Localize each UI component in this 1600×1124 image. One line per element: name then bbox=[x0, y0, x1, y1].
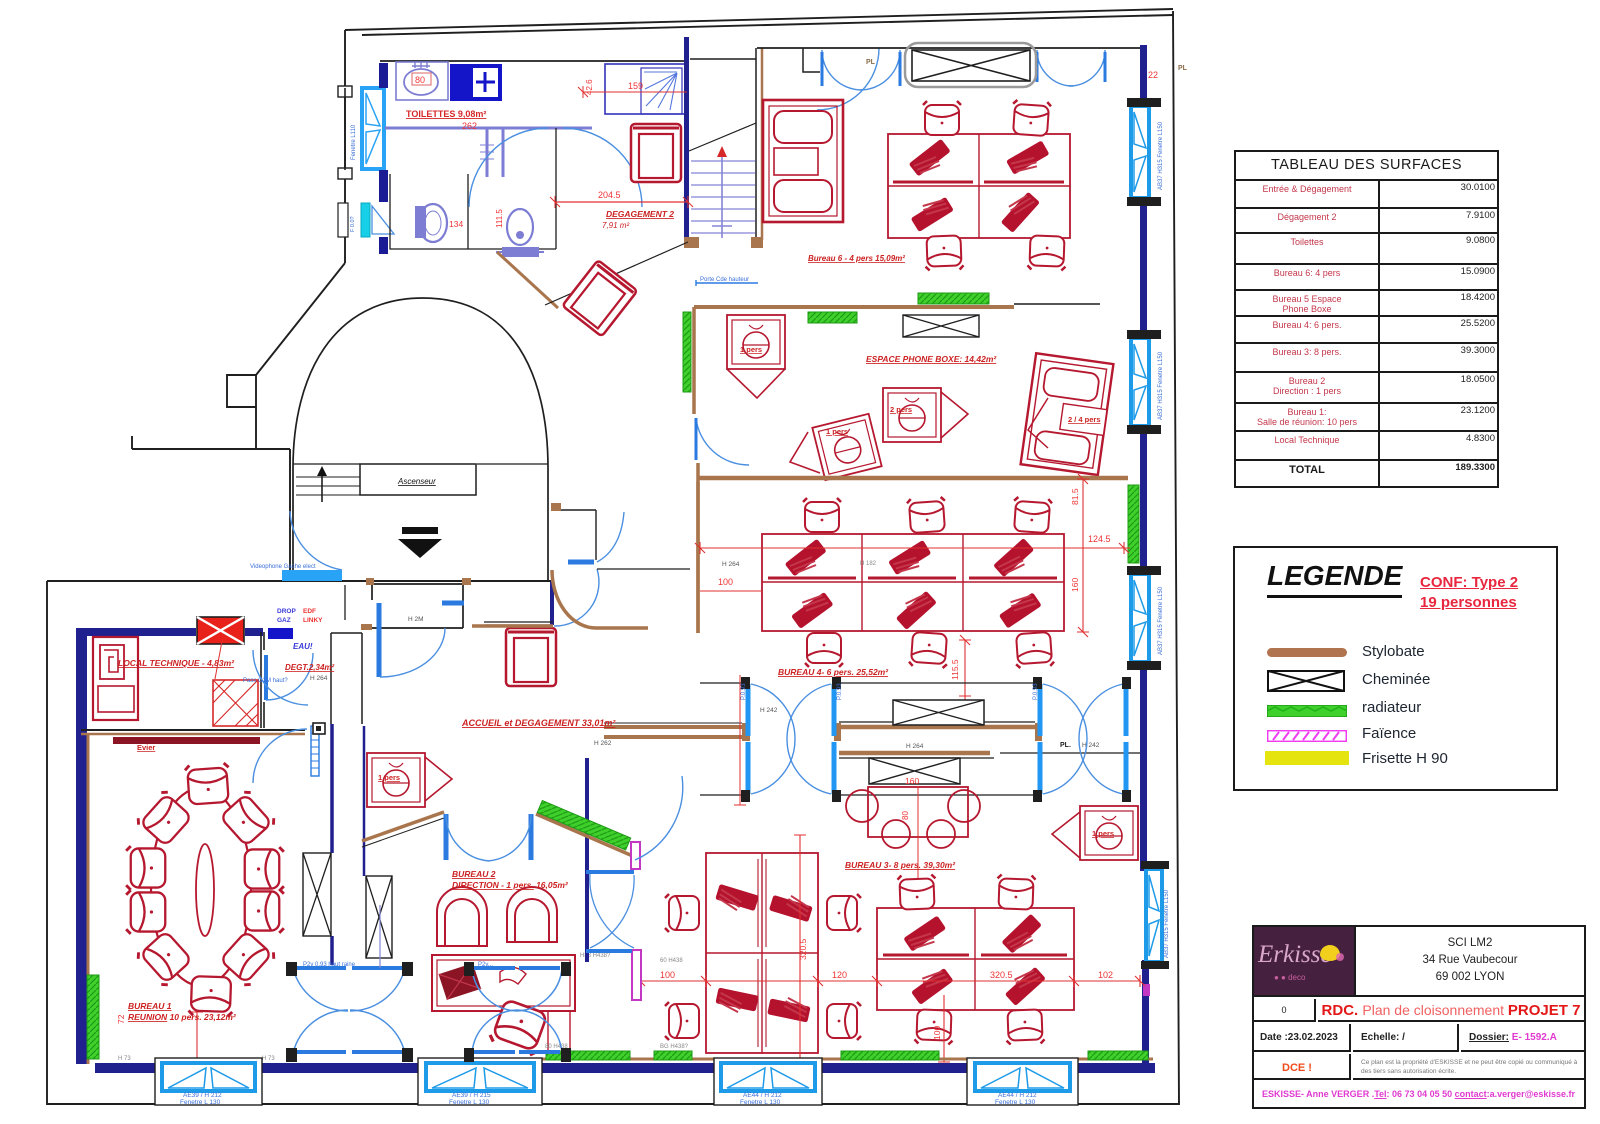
svg-text:Porte Cde hauteur: Porte Cde hauteur bbox=[700, 277, 749, 283]
svg-text:H 2M: H 2M bbox=[408, 616, 424, 623]
svg-text:AB37 H315 Fenetre L150: AB37 H315 Fenetre L150 bbox=[1164, 889, 1170, 958]
svg-text:ACCUEIL et DEGAGEMENT 33,01m²: ACCUEIL et DEGAGEMENT 33,01m² bbox=[461, 718, 616, 728]
svg-text:AB37 H315 Fenetre L150: AB37 H315 Fenetre L150 bbox=[1158, 121, 1164, 190]
svg-text:Bureau 6 - 4 pers 15,09m²: Bureau 6 - 4 pers 15,09m² bbox=[808, 254, 905, 263]
svg-text:F 0.0?: F 0.0? bbox=[350, 216, 356, 232]
svg-text:DEGT.2,34m²: DEGT.2,34m² bbox=[285, 663, 335, 672]
svg-text:H 73: H 73 bbox=[118, 1056, 131, 1062]
svg-text:AE44 / H 212: AE44 / H 212 bbox=[998, 1092, 1037, 1099]
svg-text:160: 160 bbox=[1070, 578, 1080, 592]
svg-text:Fenetre L110: Fenetre L110 bbox=[351, 124, 357, 160]
svg-text:BUREAU 1: BUREAU 1 bbox=[128, 1001, 172, 1011]
svg-text:LOCAL TECHNIQUE - 4,83m²: LOCAL TECHNIQUE - 4,83m² bbox=[118, 658, 235, 668]
svg-text:124.5: 124.5 bbox=[1088, 534, 1111, 544]
svg-text:Pass O2M haut?: Pass O2M haut? bbox=[243, 678, 288, 684]
svg-text:2 / 4 pers: 2 / 4 pers bbox=[1068, 415, 1101, 424]
svg-text:REUNION 10 pers. 23,12m²: REUNION 10 pers. 23,12m² bbox=[128, 1012, 237, 1022]
svg-text:80: 80 bbox=[415, 75, 425, 85]
svg-text:P2v...: P2v... bbox=[478, 962, 493, 968]
svg-text:H 242: H 242 bbox=[760, 707, 778, 714]
svg-text:22: 22 bbox=[1148, 70, 1158, 80]
svg-text:42.6: 42.6 bbox=[585, 79, 594, 95]
svg-text:60 H438: 60 H438 bbox=[660, 958, 683, 964]
svg-text:BG H438?: BG H438? bbox=[660, 1044, 689, 1050]
svg-text:H 262: H 262 bbox=[594, 740, 612, 747]
svg-text:1 pers: 1 pers bbox=[378, 773, 400, 782]
svg-text:AB37 H315 Fenetre L150: AB37 H315 Fenetre L150 bbox=[1158, 586, 1164, 655]
svg-text:160: 160 bbox=[905, 776, 919, 786]
svg-text:P2v 0.93 haut raine: P2v 0.93 haut raine bbox=[303, 962, 356, 968]
svg-text:AB37 H315 Fenetre L150: AB37 H315 Fenetre L150 bbox=[1158, 351, 1164, 420]
svg-text:DEGAGEMENT 2: DEGAGEMENT 2 bbox=[606, 209, 674, 219]
svg-text:P.0.93: P.0.93 bbox=[837, 683, 843, 700]
svg-text:PL.: PL. bbox=[1060, 742, 1071, 749]
svg-text:H88 H438?: H88 H438? bbox=[580, 953, 611, 959]
svg-text:AE44 / H 212: AE44 / H 212 bbox=[743, 1092, 782, 1099]
svg-text:PL: PL bbox=[866, 59, 876, 66]
svg-text:ESPACE PHONE BOXE: 14,42m²: ESPACE PHONE BOXE: 14,42m² bbox=[866, 354, 997, 364]
svg-text:H 73: H 73 bbox=[262, 1056, 275, 1062]
svg-text:H 264: H 264 bbox=[310, 675, 328, 682]
svg-text:H 264: H 264 bbox=[906, 743, 924, 750]
svg-text:1 pers: 1 pers bbox=[1092, 829, 1114, 838]
svg-text:LINKY: LINKY bbox=[303, 617, 323, 624]
svg-text:H 264: H 264 bbox=[722, 561, 740, 568]
svg-text:72: 72 bbox=[116, 1014, 126, 1024]
svg-text:262: 262 bbox=[462, 121, 477, 131]
svg-text:Fenetre L 130: Fenetre L 130 bbox=[180, 1099, 221, 1106]
svg-text:102: 102 bbox=[1098, 970, 1113, 980]
svg-text:120: 120 bbox=[832, 970, 847, 980]
svg-text:EDF: EDF bbox=[303, 608, 316, 615]
svg-text:AE39 / H 212: AE39 / H 212 bbox=[183, 1092, 222, 1099]
svg-text:320.5: 320.5 bbox=[798, 938, 808, 960]
svg-text:204.5: 204.5 bbox=[598, 190, 621, 200]
svg-text:TOILETTES 9,08m²: TOILETTES 9,08m² bbox=[406, 109, 486, 119]
svg-text:Evier: Evier bbox=[137, 743, 155, 752]
svg-text:Fenetre L 130: Fenetre L 130 bbox=[740, 1099, 781, 1106]
svg-text:80: 80 bbox=[901, 811, 910, 820]
svg-text:100: 100 bbox=[932, 1026, 942, 1040]
svg-text:P.0.93: P.0.93 bbox=[741, 683, 747, 700]
svg-text:7,91 m²: 7,91 m² bbox=[602, 221, 629, 230]
svg-text:1 pers: 1 pers bbox=[740, 345, 762, 354]
svg-text:111.5: 111.5 bbox=[495, 209, 504, 228]
svg-text:Fenetre L 130: Fenetre L 130 bbox=[995, 1099, 1036, 1106]
svg-text:PL: PL bbox=[1178, 65, 1188, 72]
svg-text:H 182: H 182 bbox=[860, 561, 877, 567]
svg-text:BUREAU 3- 8 pers. 39,30m²: BUREAU 3- 8 pers. 39,30m² bbox=[845, 860, 956, 870]
svg-text:BUREAU 4- 6 pers. 25,52m²: BUREAU 4- 6 pers. 25,52m² bbox=[778, 667, 889, 677]
svg-text:EAU!: EAU! bbox=[293, 642, 313, 651]
svg-text:DIRECTION - 1 pers. 16,05m²: DIRECTION - 1 pers. 16,05m² bbox=[452, 880, 569, 890]
svg-text:320.5: 320.5 bbox=[990, 970, 1013, 980]
svg-text:100: 100 bbox=[718, 577, 733, 587]
svg-text:Ascenseur: Ascenseur bbox=[397, 477, 436, 486]
svg-text:DROP: DROP bbox=[277, 608, 296, 615]
svg-text:GAZ: GAZ bbox=[277, 617, 291, 624]
svg-text:134: 134 bbox=[449, 219, 463, 229]
svg-text:AE39 / H 215: AE39 / H 215 bbox=[452, 1092, 491, 1099]
svg-text:BUREAU 2: BUREAU 2 bbox=[452, 869, 496, 879]
svg-text:1 pers: 1 pers bbox=[826, 427, 848, 436]
svg-text:2 pers: 2 pers bbox=[890, 405, 912, 414]
svg-text:P.0.93: P.0.93 bbox=[1033, 683, 1039, 700]
svg-text:Fenetre L 130: Fenetre L 130 bbox=[449, 1099, 490, 1106]
svg-text:159: 159 bbox=[628, 81, 643, 91]
svg-text:Videophone Gache elect: Videophone Gache elect bbox=[250, 564, 316, 570]
svg-text:115.5: 115.5 bbox=[950, 659, 960, 680]
svg-text:H 242: H 242 bbox=[1082, 742, 1100, 749]
svg-text:81.5: 81.5 bbox=[1070, 488, 1080, 505]
svg-text:100: 100 bbox=[660, 970, 675, 980]
